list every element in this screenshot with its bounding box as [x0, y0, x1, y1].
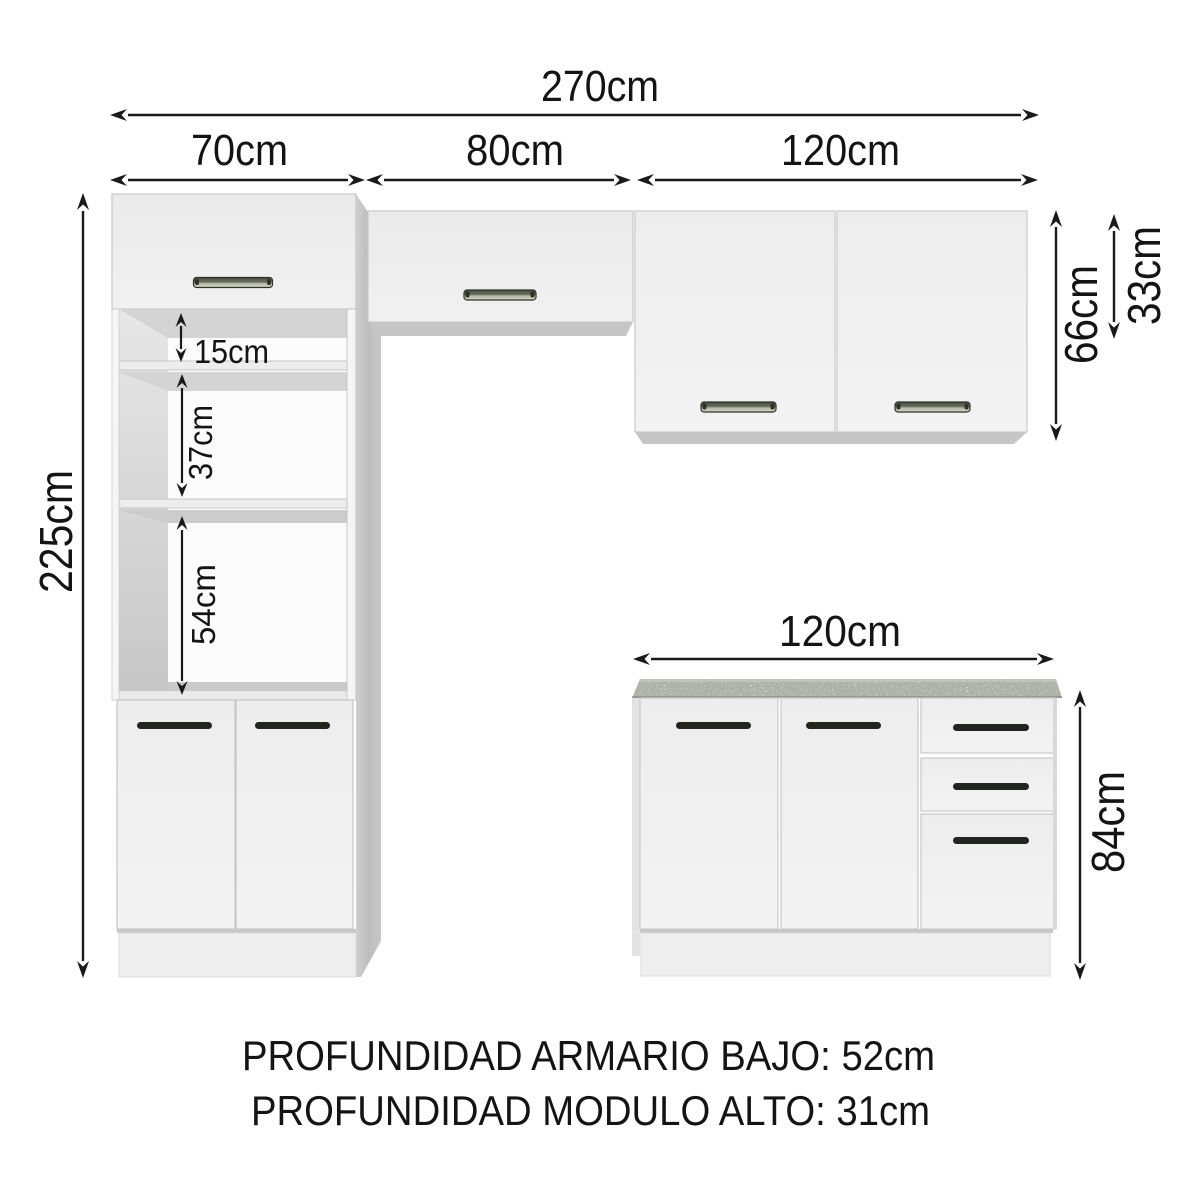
svg-text:84cm: 84cm [1082, 771, 1134, 873]
svg-text:120cm: 120cm [781, 126, 900, 175]
svg-text:54cm: 54cm [185, 564, 222, 645]
svg-text:37cm: 37cm [182, 405, 219, 480]
svg-text:15cm: 15cm [194, 333, 269, 370]
svg-text:70cm: 70cm [191, 126, 288, 175]
svg-text:270cm: 270cm [541, 62, 659, 111]
svg-text:PROFUNDIDAD ARMARIO BAJO: 52cm: PROFUNDIDAD ARMARIO BAJO: 52cm [242, 1032, 935, 1079]
svg-text:120cm: 120cm [779, 607, 901, 656]
svg-text:33cm: 33cm [1118, 226, 1170, 325]
svg-text:PROFUNDIDAD MODULO ALTO: 31cm: PROFUNDIDAD MODULO ALTO: 31cm [251, 1087, 930, 1134]
svg-text:66cm: 66cm [1055, 265, 1107, 364]
svg-text:80cm: 80cm [466, 126, 564, 175]
svg-text:225cm: 225cm [30, 470, 82, 593]
